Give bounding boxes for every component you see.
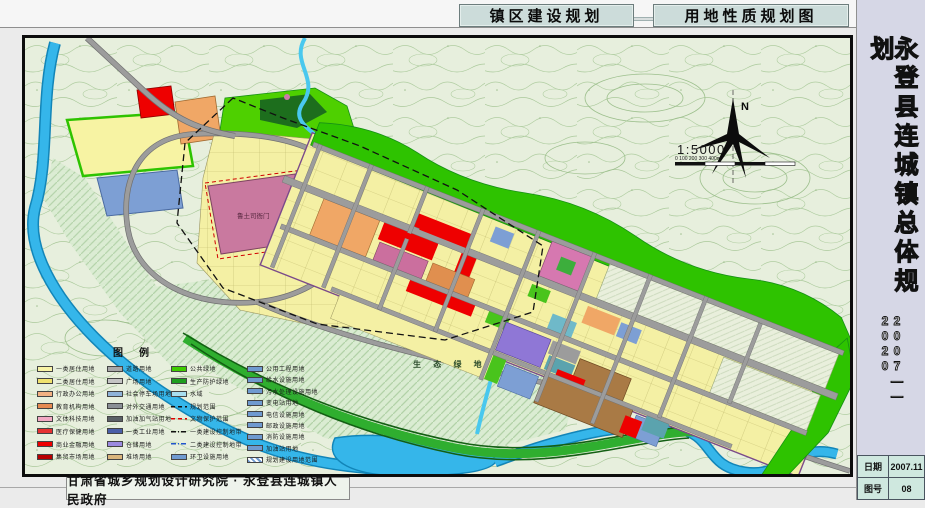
planning-sheet: 镇区建设规划 用地性质规划图 — [0, 0, 925, 500]
legend-item: 文体科技用地 — [37, 414, 107, 423]
legend-swatch — [37, 428, 53, 434]
legend-item-label: 生产防护绿地 — [190, 377, 229, 386]
legend-item-label: 环卫设施用地 — [190, 452, 229, 461]
legend-item-label: 规划建设用地范围 — [266, 455, 318, 464]
legend-column-4: 公用工程用地 给水设施用地 污水处理设施用地 — [247, 364, 339, 467]
legend-column-3: 公共绿地 生产防护绿地 水域 — [171, 364, 247, 467]
legend-item-label: 二类居住用地 — [56, 377, 95, 386]
legend-item-label: 教育机构用地 — [56, 402, 95, 411]
legend-item: 堆场用地 — [107, 452, 171, 461]
legend-item: 规划范围 — [171, 402, 247, 411]
sheet-number-label: 图号 — [858, 478, 889, 500]
title-left-label: 镇区建设规划 — [489, 5, 603, 26]
legend-swatch — [247, 400, 263, 406]
legend-swatch — [247, 457, 263, 463]
legend-item: 一类居住用地 — [37, 364, 107, 373]
legend-item: 文物保护范围 — [171, 414, 247, 423]
legend-swatch — [247, 434, 263, 440]
legend-swatch — [171, 403, 187, 409]
legend-item: 规划建设用地范围 — [247, 455, 339, 464]
date-value: 2007.11 — [889, 456, 925, 478]
legend-item: 生产防护绿地 — [171, 377, 247, 386]
legend-item: 集贸市场用地 — [37, 452, 107, 461]
legend-swatch — [37, 391, 53, 397]
legend-swatch — [107, 378, 123, 384]
legend-item-label: 加油加气站用地 — [126, 414, 172, 423]
legend-swatch — [247, 377, 263, 383]
legend-swatch — [171, 416, 187, 422]
legend-swatch — [171, 378, 187, 384]
legend-item-label: 电信设施用地 — [266, 410, 305, 419]
legend-swatch — [37, 403, 53, 409]
top-strip: 镇区建设规划 用地性质规划图 — [0, 0, 856, 28]
legend-item: 邮政设施用地 — [247, 421, 339, 430]
legend-item-label: 医疗保健用地 — [56, 427, 95, 436]
eco-green-label: 生 态 绿 地 — [413, 359, 487, 369]
legend-item-label: 污水处理设施用地 — [266, 387, 318, 396]
legend-item-label: 集贸市场用地 — [56, 452, 95, 461]
legend-item-label: 仓储用地 — [126, 440, 152, 449]
legend-item-label: 行政办公用地 — [56, 389, 95, 398]
legend-swatch — [247, 388, 263, 394]
legend-swatch — [247, 411, 263, 417]
legend-item-label: 一类建设控制地带 — [190, 427, 242, 436]
legend-swatch — [247, 445, 263, 451]
legend-item: 二类居住用地 — [37, 377, 107, 386]
legend-swatch — [107, 391, 123, 397]
monument-dot — [284, 94, 290, 100]
title-right-label: 用地性质规划图 — [684, 5, 817, 26]
credit-bar: 甘肃省城乡规划设计研究院 · 永登县连城镇人民政府 — [66, 477, 350, 500]
legend-column-1: 一类居住用地 二类居住用地 行政办公用地 — [37, 364, 107, 467]
legend-item: 对外交通用地 — [107, 402, 171, 411]
legend-swatch — [37, 416, 53, 422]
legend-item: 给水设施用地 — [247, 375, 339, 384]
sheet-number-value: 08 — [889, 478, 925, 500]
legend-swatch — [171, 454, 187, 460]
legend-item-label: 规划范围 — [190, 402, 216, 411]
legend-swatch — [37, 441, 53, 447]
legend: 图例 一类居住用地 二类居住用地 — [37, 344, 342, 467]
legend-item-label: 一类居住用地 — [56, 364, 95, 373]
legend-item: 一类建设控制地带 — [171, 427, 247, 436]
legend-item-label: 对外交通用地 — [126, 402, 165, 411]
legend-item: 行政办公用地 — [37, 389, 107, 398]
north-label: N — [741, 101, 749, 113]
legend-title: 图例 — [113, 344, 342, 359]
title-sidebar: 永登县连城镇总体规划 2007——2020 日期 2007.11 图号 08 — [856, 0, 925, 500]
legend-swatch — [247, 422, 263, 428]
legend-swatch — [107, 428, 123, 434]
sheet-title-vertical: 永登县连城镇总体规划 — [867, 36, 915, 308]
legend-column-2: 道路用地 广场用地 社会停车场用地 — [107, 364, 171, 467]
legend-item: 广场用地 — [107, 377, 171, 386]
legend-swatch — [171, 391, 187, 397]
legend-swatch — [247, 366, 263, 372]
legend-item: 公用工程用地 — [247, 364, 339, 373]
legend-item-label: 消防设施用地 — [266, 432, 305, 441]
legend-item: 商业金融用地 — [37, 440, 107, 449]
legend-swatch — [107, 441, 123, 447]
legend-item-label: 给水设施用地 — [266, 375, 305, 384]
legend-item: 社会停车场用地 — [107, 389, 171, 398]
legend-swatch — [171, 441, 187, 447]
legend-item: 一类工业用地 — [107, 427, 171, 436]
sheet-info-table: 日期 2007.11 图号 08 — [857, 455, 925, 500]
legend-item-label: 水域 — [190, 389, 203, 398]
legend-item: 电信设施用地 — [247, 410, 339, 419]
legend-item: 变电站用地 — [247, 398, 339, 407]
legend-item: 水域 — [171, 389, 247, 398]
title-construction-plan: 镇区建设规划 — [459, 4, 634, 27]
legend-item-label: 文体科技用地 — [56, 414, 95, 423]
title-connector — [632, 17, 655, 21]
scale-ratio: 1:5000 — [677, 142, 726, 157]
legend-swatch — [107, 366, 123, 372]
map-frame: 生 态 绿 地 鲁土司衙门 N 1:5000 0 100 200 300 400… — [22, 35, 853, 477]
plan-years: 2007——2020 — [879, 314, 903, 455]
legend-item: 教育机构用地 — [37, 402, 107, 411]
legend-item: 环卫设施用地 — [171, 452, 247, 461]
legend-swatch — [37, 378, 53, 384]
title-landuse-map: 用地性质规划图 — [653, 4, 849, 27]
legend-swatch — [37, 454, 53, 460]
legend-swatch — [171, 366, 187, 372]
legend-item-label: 社会停车场用地 — [126, 389, 172, 398]
legend-item: 二类建设控制地带 — [171, 440, 247, 449]
legend-item-label: 商业金融用地 — [56, 440, 95, 449]
credit-text: 甘肃省城乡规划设计研究院 · 永登县连城镇人民政府 — [67, 470, 349, 508]
legend-swatch — [107, 454, 123, 460]
legend-item: 污水处理设施用地 — [247, 387, 339, 396]
legend-item-label: 公共绿地 — [190, 364, 216, 373]
legend-item-label: 邮政设施用地 — [266, 421, 305, 430]
legend-item: 加油加气站用地 — [107, 414, 171, 423]
scale-ticks: 0 100 200 300 400m — [675, 156, 721, 162]
legend-item-label: 公用工程用地 — [266, 364, 305, 373]
legend-item: 道路用地 — [107, 364, 171, 373]
legend-item-label: 广场用地 — [126, 377, 152, 386]
legend-item: 消防设施用地 — [247, 432, 339, 441]
legend-item: 加油站用地 — [247, 444, 339, 453]
legend-swatch — [37, 366, 53, 372]
legend-item: 仓储用地 — [107, 440, 171, 449]
legend-item-label: 二类建设控制地带 — [190, 440, 242, 449]
legend-item-label: 变电站用地 — [266, 398, 299, 407]
legend-item: 医疗保健用地 — [37, 427, 107, 436]
legend-swatch — [107, 403, 123, 409]
legend-item-label: 加油站用地 — [266, 444, 299, 453]
date-label: 日期 — [858, 456, 889, 478]
legend-swatch — [171, 428, 187, 434]
legend-item-label: 堆场用地 — [126, 452, 152, 461]
legend-item-label: 一类工业用地 — [126, 427, 165, 436]
legend-item: 公共绿地 — [171, 364, 247, 373]
heritage-label: 鲁土司衙门 — [237, 211, 270, 220]
legend-item-label: 文物保护范围 — [190, 414, 229, 423]
legend-swatch — [107, 416, 123, 422]
legend-item-label: 道路用地 — [126, 364, 152, 373]
